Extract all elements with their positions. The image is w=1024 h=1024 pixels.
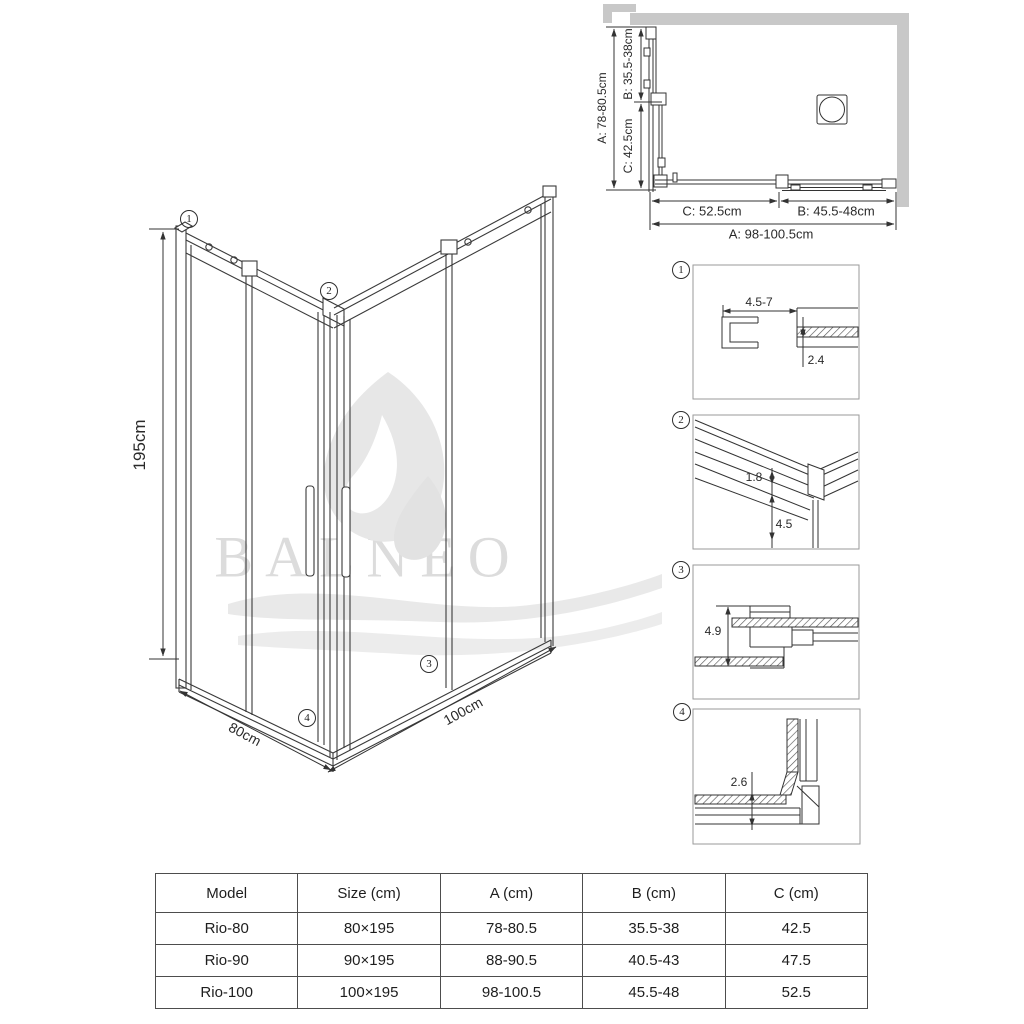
- detail-1-dim-b: 2.4: [808, 353, 825, 367]
- col-c: C (cm): [725, 874, 867, 913]
- plan-side-b-label: B: 35.5-38cm: [621, 28, 635, 99]
- detail-1-dim-a: 4.5-7: [745, 295, 772, 309]
- table-row: Rio-100 100×195 98-100.5 45.5-48 52.5: [156, 977, 868, 1009]
- line-art: [0, 0, 1024, 1024]
- plan-front-b-label: B: 45.5-48cm: [797, 204, 874, 219]
- plan-view: [603, 4, 909, 230]
- table-row: Rio-80 80×195 78-80.5 35.5-38 42.5: [156, 913, 868, 945]
- col-b: B (cm): [583, 874, 725, 913]
- door-handle-right: [342, 487, 350, 577]
- callout-3: 3: [420, 655, 438, 673]
- detail-1: [693, 265, 859, 399]
- col-a: A (cm): [440, 874, 582, 913]
- callout-2: 2: [320, 282, 338, 300]
- door-handle-left: [306, 486, 314, 576]
- detail-2-dim-a: 1.8: [746, 470, 763, 484]
- detail-4-callout: 4: [673, 703, 691, 721]
- col-size: Size (cm): [298, 874, 440, 913]
- product-dimension-sheet: BALNEO: [0, 0, 1024, 1024]
- plan-side-total-label: A: 78-80.5cm: [595, 72, 609, 143]
- wall-top: [630, 13, 909, 25]
- detail-3-dim-a: 4.9: [705, 624, 722, 638]
- plan-side-c-label: C: 42.5cm: [621, 119, 635, 174]
- detail-1-callout: 1: [672, 261, 690, 279]
- wall-right: [897, 13, 909, 207]
- plan-front-c-label: C: 52.5cm: [682, 204, 741, 219]
- plan-front-total-label: A: 98-100.5cm: [729, 227, 814, 242]
- shower-drain: [817, 95, 847, 124]
- callout-1: 1: [180, 210, 198, 228]
- detail-2-dim-b: 4.5: [776, 517, 793, 531]
- callout-4: 4: [298, 709, 316, 727]
- detail-2-callout: 2: [672, 411, 690, 429]
- detail-4: [693, 709, 860, 844]
- col-model: Model: [156, 874, 298, 913]
- table-row: Rio-90 90×195 88-90.5 40.5-43 47.5: [156, 945, 868, 977]
- height-dimension-label: 195cm: [130, 419, 150, 470]
- size-table: Model Size (cm) A (cm) B (cm) C (cm) Rio…: [155, 873, 868, 1009]
- detail-4-dim-a: 2.6: [731, 775, 748, 789]
- table-header-row: Model Size (cm) A (cm) B (cm) C (cm): [156, 874, 868, 913]
- watermark-leaf-waves: [228, 372, 662, 655]
- detail-3-callout: 3: [672, 561, 690, 579]
